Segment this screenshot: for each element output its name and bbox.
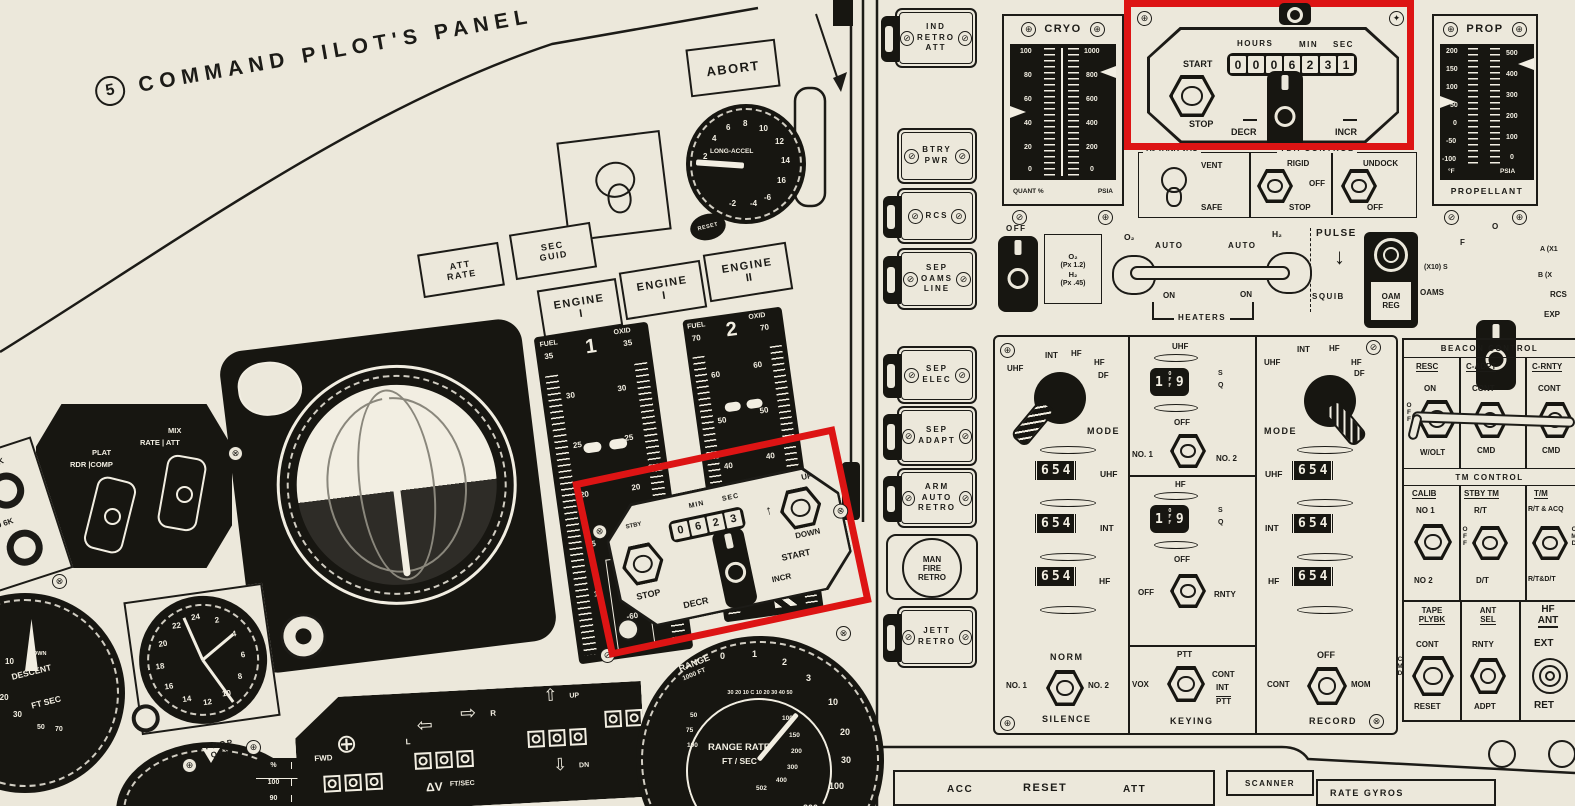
screw-icon: ⊗	[52, 574, 67, 589]
breaker-sep-elec[interactable]: ⊘SEPELEC⊘	[897, 346, 977, 404]
push-button[interactable]	[2, 525, 47, 570]
screw-icon: ⊘	[904, 368, 919, 383]
up-arrow-icon: ⇧	[543, 685, 558, 706]
screw-icon: ⊕	[1512, 210, 1527, 225]
tape-plybk-knob[interactable]	[1412, 656, 1454, 696]
hf-channel-selector[interactable]: 654	[1034, 567, 1077, 586]
pressure-placard: O₂ (Px 1.2) H₂ (Px .45)	[1044, 234, 1102, 304]
hf-channel-selector[interactable]: 654	[1291, 567, 1334, 586]
left-arrow-icon: ⇦	[416, 714, 433, 738]
down-arrow-icon: ⇩	[553, 755, 568, 776]
screw-icon: ⊕	[1000, 343, 1015, 358]
digit-window-row	[604, 709, 643, 728]
breaker-jett-retro[interactable]: ⊘JETTRETRO⊘	[897, 606, 977, 668]
screw-icon: ⊕	[182, 758, 197, 773]
int-channel-selector[interactable]: 654	[1291, 514, 1334, 533]
digit-window-row	[527, 728, 587, 748]
panel-diagram: 5 COMMAND PILOT'S PANEL ABORT LONG-ACCEL…	[0, 0, 1575, 806]
screw-icon: ⊘	[951, 209, 966, 224]
screw-icon: ⊕	[1000, 716, 1015, 731]
mission-clock-frame: 24 2 4 6 8 10 12 14 16 18 20 22	[123, 583, 280, 735]
comm-panel: ⊕ UHF INT HF HF DF MODE 654 UHF 654 INT …	[993, 335, 1398, 735]
digit-window-row	[414, 750, 474, 770]
screw-icon: ⊘	[959, 429, 972, 444]
prop-gauge: ⊕ PROP ⊕ 200 150 100 50 0 -50 -100 500 4…	[1432, 14, 1538, 206]
screw-icon: ⊘	[1366, 340, 1381, 355]
cryo-gauge: ⊕ CRYO ⊕ 100 80 60 40 20 0 1000 800 600 …	[1002, 14, 1124, 206]
screw-icon: ⊗	[1369, 714, 1384, 729]
hazard-stripe	[766, 540, 797, 608]
breaker-sep-adapt[interactable]: ⊘SEPADAPT⊘	[897, 406, 977, 466]
right-arrow-icon: ⇨	[460, 702, 477, 726]
title-badge: 5	[93, 74, 128, 109]
ant-sel-knob[interactable]	[1470, 658, 1506, 694]
silence-knob[interactable]	[1046, 670, 1084, 706]
uhf-no1-no2-knob[interactable]	[1170, 434, 1206, 468]
mode-knob-lever[interactable]	[1010, 398, 1056, 448]
screw-icon: ⊘	[900, 31, 914, 46]
screw-icon: ⊘	[958, 31, 972, 46]
screw-icon: ⊕	[1443, 22, 1458, 37]
hf-off-rnty-knob[interactable]	[1170, 574, 1206, 608]
down-arrow-icon: ↓	[1334, 244, 1345, 270]
breaker-sep-oams-line[interactable]: ⊘SEPOAMSLINE⊘	[897, 248, 977, 310]
mount-plate	[235, 358, 305, 419]
screw-icon: ⊘	[600, 648, 615, 663]
digit-window-row	[323, 773, 383, 793]
breaker-rcs[interactable]: ⊘RCS⊘	[897, 188, 977, 244]
record-knob[interactable]	[1307, 667, 1347, 705]
screw-icon: ⊘	[908, 209, 923, 224]
off-lever[interactable]	[998, 236, 1038, 312]
hf-squelch-selector[interactable]: 1 OFF 9	[1150, 505, 1189, 533]
stby-tm-knob[interactable]	[1472, 526, 1508, 560]
push-button[interactable]	[0, 468, 29, 513]
breaker-btry-pwr[interactable]: ⊘BTRYPWR⊘	[897, 128, 977, 184]
screw-icon: ⊘	[902, 429, 915, 444]
screw-icon: ⊕	[1512, 22, 1527, 37]
attitude-indicator	[217, 317, 558, 676]
keying-knob[interactable]	[1167, 666, 1205, 702]
screw-icon: ⊘	[959, 630, 972, 645]
scanner-placard: SCANNER	[1226, 770, 1314, 796]
screw-icon: ⊘	[902, 630, 915, 645]
plus-thruster-icon: ⊕	[335, 728, 358, 760]
tda-rigid-knob[interactable]	[1257, 169, 1293, 203]
breaker-ind-retro-att[interactable]: ⊘INDRETROATT⊘	[895, 8, 977, 68]
tm-mode-knob[interactable]	[1532, 526, 1568, 560]
screw-icon: ⊘	[902, 491, 915, 506]
pointer-icon	[609, 438, 628, 450]
screw-icon: ⊘	[904, 149, 919, 164]
screw-icon: ⊕	[1090, 22, 1105, 37]
screw-icon: ⊘	[955, 368, 970, 383]
tda-undock-knob[interactable]	[1341, 169, 1377, 203]
maneuver-dv-panel: FWD ⊕ L ⇦ ⇨ R ⇧ UP ΔV FT/SEC ⇩ DN	[293, 681, 647, 806]
screw-icon: ⊘	[1012, 210, 1027, 225]
hf-ant-knob[interactable]	[1532, 658, 1568, 694]
long-accel-gauge: LONG-ACCEL 2 4 6 8 10 12 14 16 -6 -4 -2	[686, 104, 806, 224]
screw-icon: ⊘	[955, 149, 970, 164]
toggle-handle-icon	[1166, 187, 1182, 207]
screw-icon: ⊘	[1444, 210, 1459, 225]
pointer-icon	[583, 441, 602, 453]
tda-control-panel: TDA CONTROL RIGID OFF STOP UNDOCK OFF	[1250, 152, 1417, 218]
screw-icon: ⊗	[228, 446, 243, 461]
beacon-tm-tape-panel: BEACON CONTROL RESC C-ADPT C-RNTY ON CON…	[1402, 338, 1575, 722]
uhf-channel-selector[interactable]: 654	[1034, 461, 1077, 480]
screw-icon: ⊘	[903, 272, 918, 287]
int-channel-selector[interactable]: 654	[1034, 514, 1077, 533]
breaker-arm-auto-retro[interactable]: ⊘ARMAUTORETRO⊘	[897, 468, 977, 528]
screw-icon: ⊕	[1021, 22, 1036, 37]
acc-reset-att-placard: ACC RESET ATT	[893, 770, 1215, 806]
screw-icon: ⊗	[836, 626, 851, 641]
uhf-channel-selector[interactable]: 654	[1291, 461, 1334, 480]
rate-gyros-placard: RATE GYROS	[1316, 779, 1496, 806]
h2-tank-vac-panel: H₂ TANK VAC VENT SAFE	[1138, 152, 1250, 218]
screw-icon: ⊘	[959, 491, 972, 506]
screw-icon: ⊕	[1098, 210, 1113, 225]
calib-knob[interactable]	[1414, 524, 1452, 560]
uhf-squelch-selector[interactable]: 1 OFF 9	[1150, 368, 1189, 396]
man-fire-retro-button[interactable]: MANFIRERETRO	[886, 534, 978, 600]
pointer-icon	[724, 401, 741, 412]
screw-icon: ⊕	[246, 740, 261, 755]
screw-icon: ⊘	[956, 272, 971, 287]
oam-reg-panel: OAM REG	[1364, 232, 1418, 328]
